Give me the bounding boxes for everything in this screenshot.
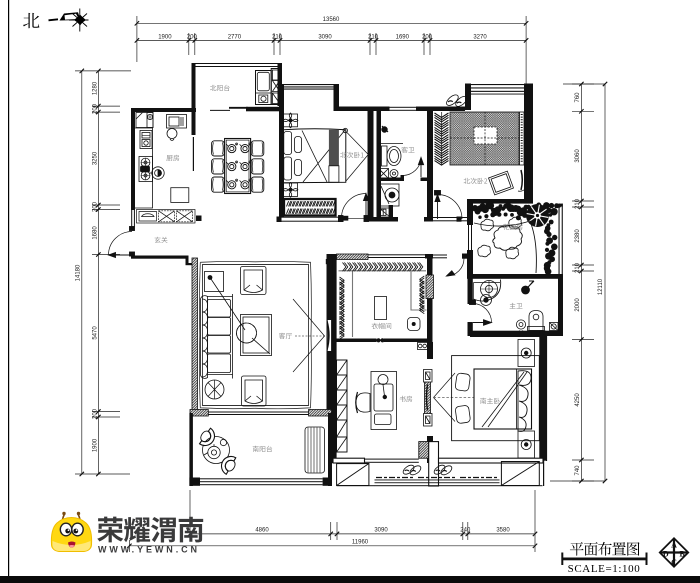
svg-text:3250: 3250 bbox=[93, 151, 99, 165]
svg-text:2000: 2000 bbox=[575, 298, 581, 312]
svg-text:1680: 1680 bbox=[93, 226, 99, 240]
svg-text:210: 210 bbox=[368, 34, 379, 40]
svg-text:1280: 1280 bbox=[93, 81, 99, 95]
svg-text:C: C bbox=[671, 558, 677, 567]
svg-text:11960: 11960 bbox=[352, 540, 369, 546]
svg-text:13560: 13560 bbox=[323, 17, 340, 23]
svg-text:210: 210 bbox=[575, 198, 581, 209]
svg-text:12110: 12110 bbox=[598, 278, 604, 295]
svg-text:2770: 2770 bbox=[228, 34, 242, 40]
svg-text:3090: 3090 bbox=[318, 34, 332, 40]
svg-text:210: 210 bbox=[272, 34, 283, 40]
svg-text:3060: 3060 bbox=[575, 149, 581, 163]
svg-text:240: 240 bbox=[460, 528, 471, 534]
svg-text:760: 760 bbox=[575, 92, 581, 103]
svg-text:4860: 4860 bbox=[255, 528, 269, 534]
svg-text:1690: 1690 bbox=[396, 34, 410, 40]
svg-text:200: 200 bbox=[93, 201, 99, 212]
svg-text:200: 200 bbox=[93, 408, 99, 419]
svg-text:5470: 5470 bbox=[93, 326, 99, 340]
svg-text:B: B bbox=[680, 549, 686, 558]
svg-text:4250: 4250 bbox=[575, 393, 581, 407]
svg-text:210: 210 bbox=[575, 262, 581, 273]
svg-text:3270: 3270 bbox=[473, 34, 487, 40]
svg-text:200: 200 bbox=[422, 34, 433, 40]
svg-text:2380: 2380 bbox=[575, 229, 581, 243]
svg-text:14180: 14180 bbox=[76, 264, 82, 281]
svg-text:200: 200 bbox=[187, 34, 198, 40]
svg-text:D: D bbox=[663, 549, 669, 558]
svg-text:SCALE=1:100: SCALE=1:100 bbox=[568, 563, 641, 575]
svg-text:1900: 1900 bbox=[158, 34, 172, 40]
svg-text:WWW.YEWN.CN: WWW.YEWN.CN bbox=[98, 545, 200, 555]
svg-text:3090: 3090 bbox=[374, 528, 388, 534]
svg-text:3580: 3580 bbox=[496, 528, 510, 534]
svg-text:740: 740 bbox=[575, 465, 581, 476]
svg-text:1900: 1900 bbox=[93, 438, 99, 452]
svg-text:A: A bbox=[671, 541, 677, 550]
svg-text:200: 200 bbox=[93, 103, 99, 114]
